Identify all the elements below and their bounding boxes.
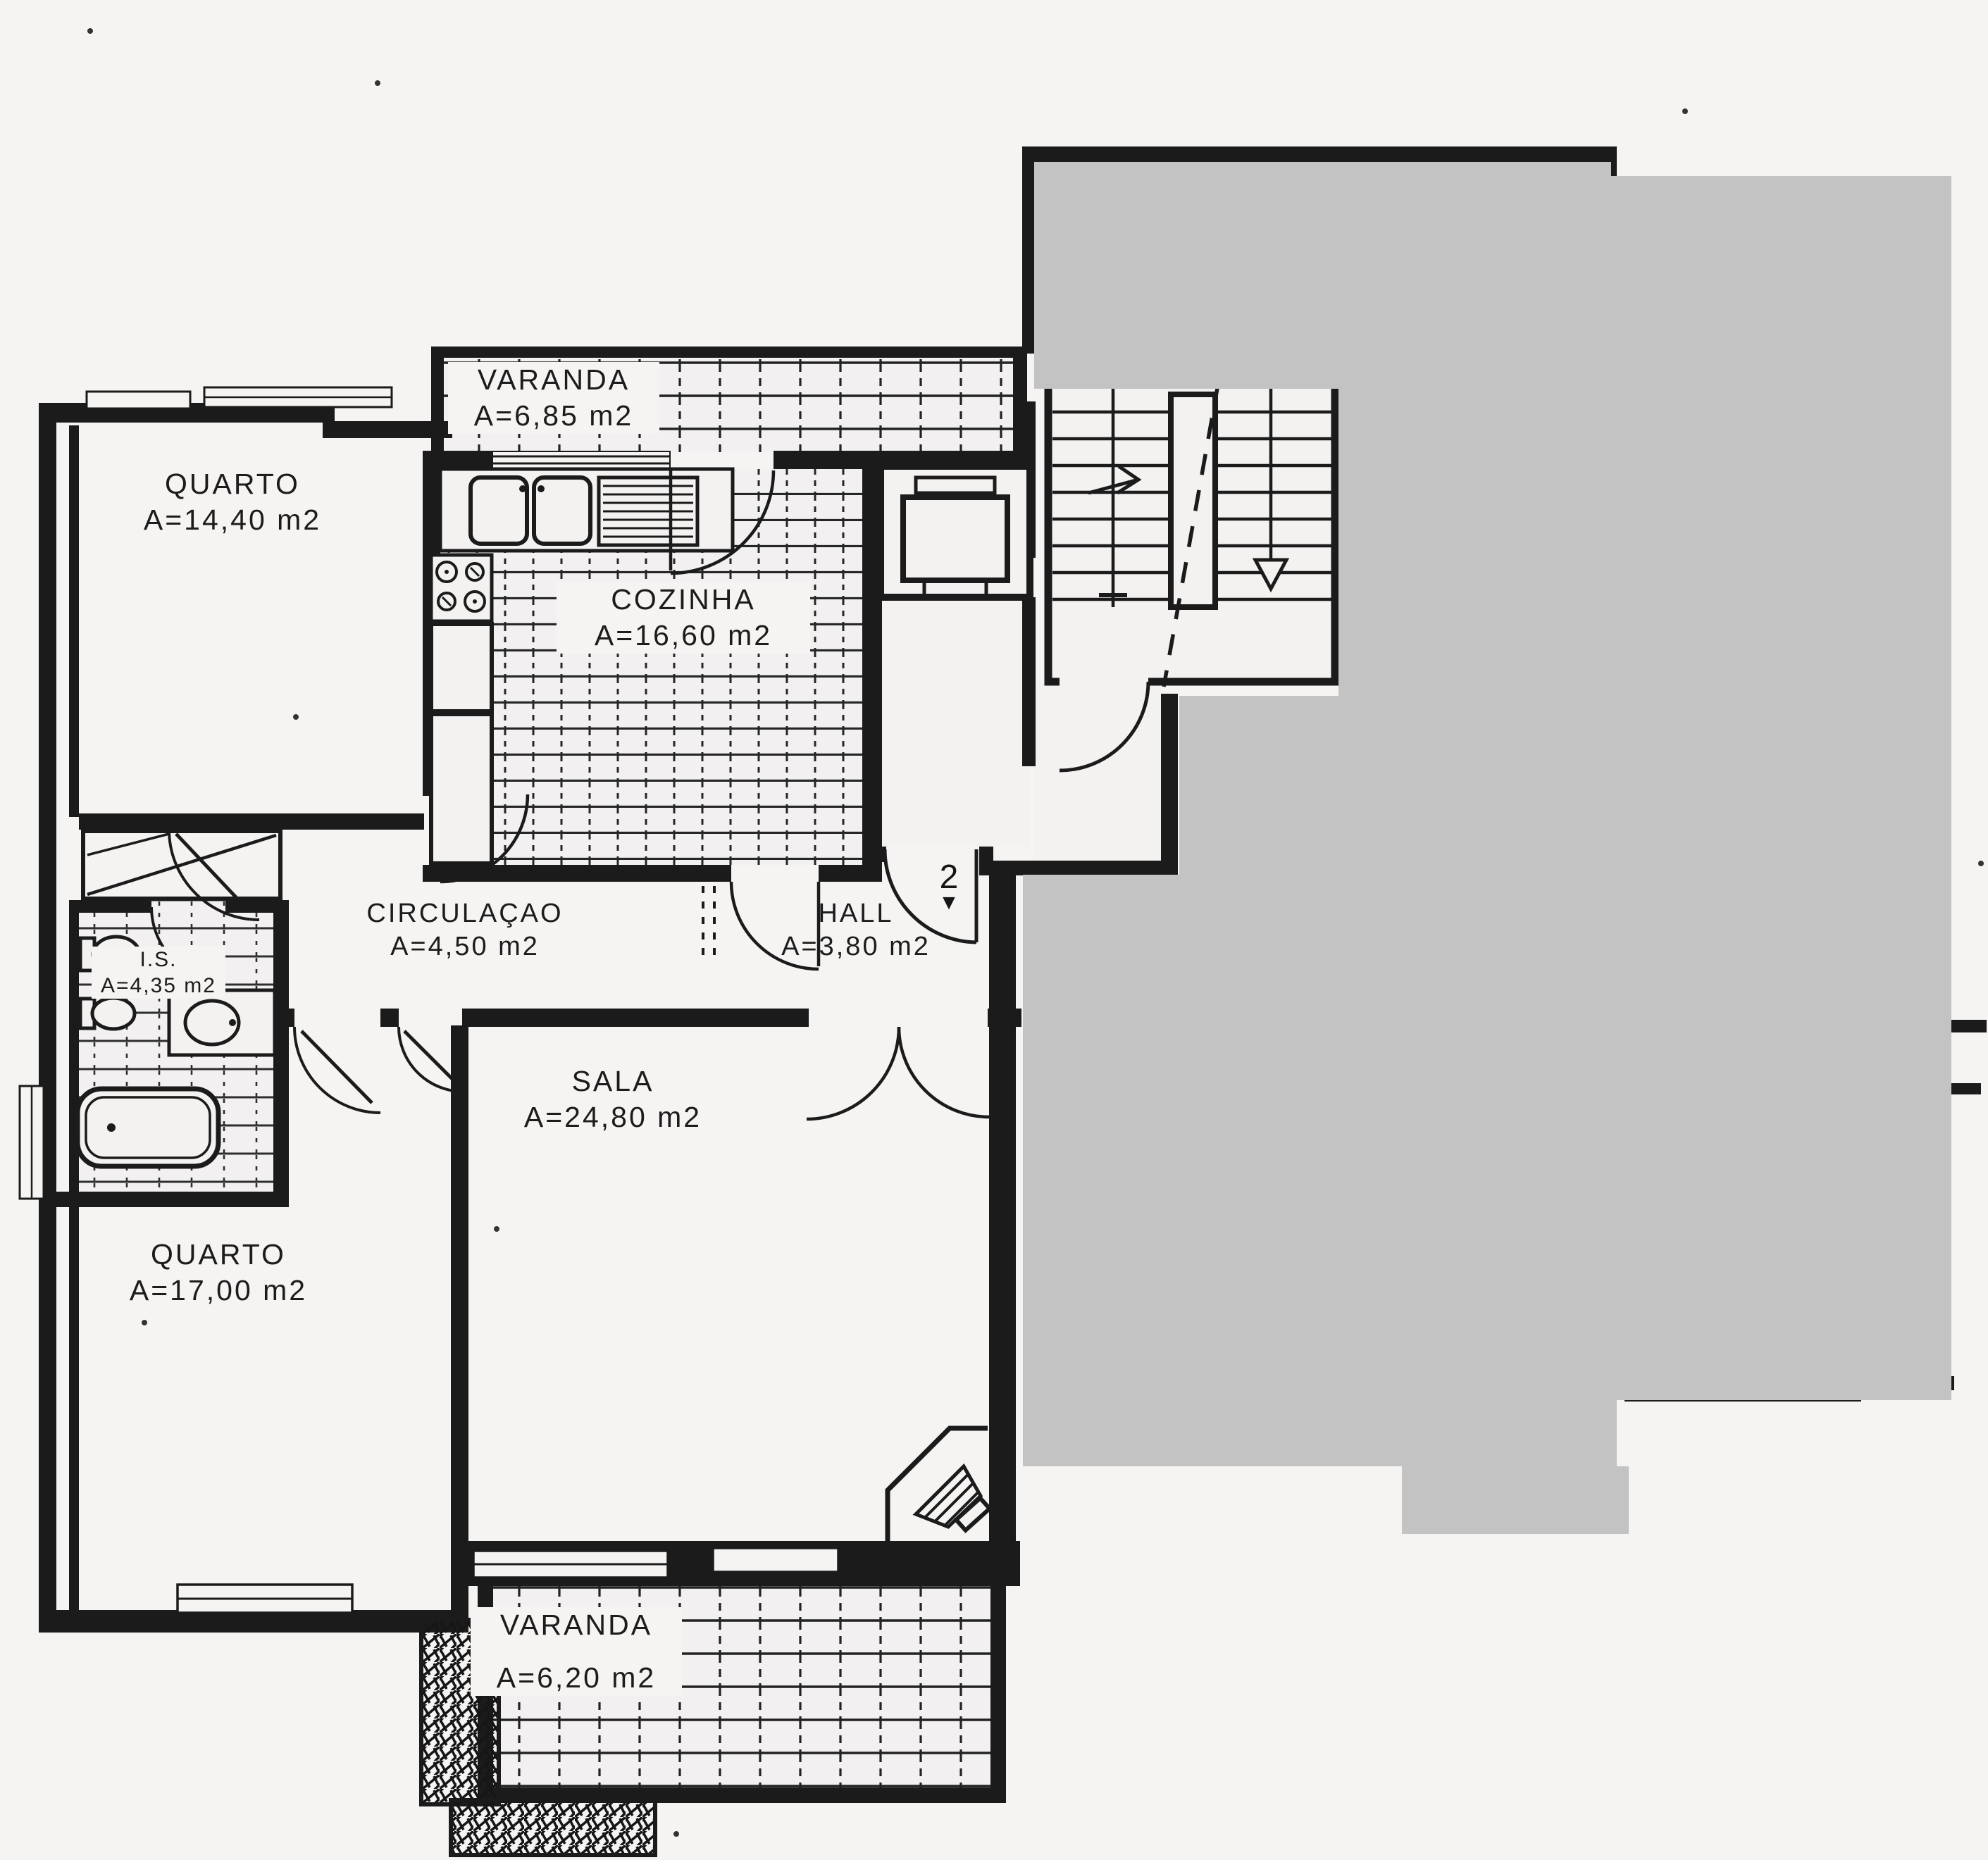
entrance-number: 2 [924,861,974,894]
window-kitchen-balcony [493,452,669,468]
wall-outer-left [39,403,56,1633]
label-quarto-bottom: QUARTO A=17,00 m2 [95,1237,342,1309]
entrance-arrow-icon: ▼ [924,894,974,911]
mask-top [1034,162,1611,389]
label-circulacao: CIRCULAÇAO A=4,50 m2 [352,897,578,963]
wall [990,1583,1006,1803]
window-sala-balcony [473,1548,838,1578]
stove-icon [431,555,492,621]
wall [423,865,731,882]
kitchen-appliance [431,714,492,863]
wall-stair-block-top [1022,146,1617,162]
wall [1022,597,1036,683]
mask-neighbour-left [1023,875,1617,1466]
mask-neighbour-right [1611,176,1951,1400]
bathtub-icon [77,1089,218,1166]
wall [1022,682,1036,766]
floor-plan-drawing [0,0,1988,1860]
wall [431,347,1027,358]
elevator-car [903,497,1007,580]
wall [1022,162,1036,354]
label-cozinha: COZINHA A=16,60 m2 [557,582,810,654]
wall [380,1009,399,1027]
wall [431,347,444,465]
kitchen-drainer [599,478,697,545]
bidet-icon [80,998,135,1029]
window-quarto-bottom [178,1585,352,1613]
elevator-door [916,478,995,493]
elevator-vestibule-floor [874,597,1030,847]
mask-landing-right [1179,696,1338,875]
mask-right-of-stairs [1338,389,1611,875]
wall [280,1009,294,1027]
label-quarto-top: QUARTO A=14,40 m2 [113,466,352,538]
wall [983,861,1164,875]
window-quarto-top [87,387,392,408]
kitchen-appliance [431,624,492,711]
label-varanda-bottom: VARANDA A=6,20 m2 [471,1607,682,1696]
wall [989,875,1016,1586]
wall [1161,694,1178,875]
mask-notch-bottom [1402,1466,1629,1534]
wall [69,1207,79,1610]
wall [69,425,79,817]
label-varanda-top: VARANDA A=6,85 m2 [448,362,659,434]
wall [56,1192,285,1207]
kitchen-sink-icon [471,478,527,544]
window-bathroom [20,1086,44,1199]
label-is: I.S. A=4,35 m2 [92,947,225,999]
wall [79,813,424,830]
wall [462,1009,809,1027]
label-sala: SALA A=24,80 m2 [493,1063,733,1135]
wall [69,900,151,913]
floor-plan: VARANDA A=6,85 m2 QUARTO A=14,40 m2 COZI… [0,0,1988,1860]
entrance-marker: 2 ▼ [924,861,974,911]
washbasin-icon [169,990,275,1055]
elevator [881,466,1030,597]
